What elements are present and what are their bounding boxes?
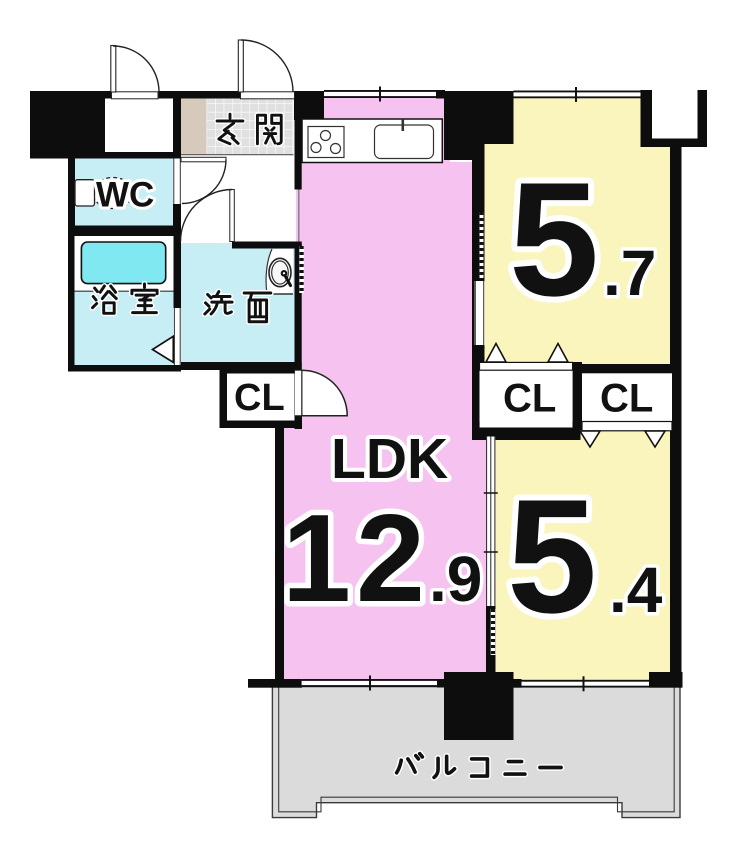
svg-text:5: 5 — [509, 149, 599, 330]
svg-text:.9: .9 — [429, 543, 482, 615]
svg-text:.7: .7 — [603, 237, 656, 309]
svg-text:CL: CL — [503, 377, 556, 421]
svg-text:CL: CL — [234, 377, 285, 419]
svg-text:CL: CL — [600, 377, 653, 421]
svg-text:12: 12 — [282, 490, 430, 628]
svg-text:LDK: LDK — [331, 427, 448, 491]
svg-text:5: 5 — [507, 466, 597, 647]
svg-text:.4: .4 — [609, 554, 663, 626]
svg-text:WC: WC — [96, 176, 154, 215]
